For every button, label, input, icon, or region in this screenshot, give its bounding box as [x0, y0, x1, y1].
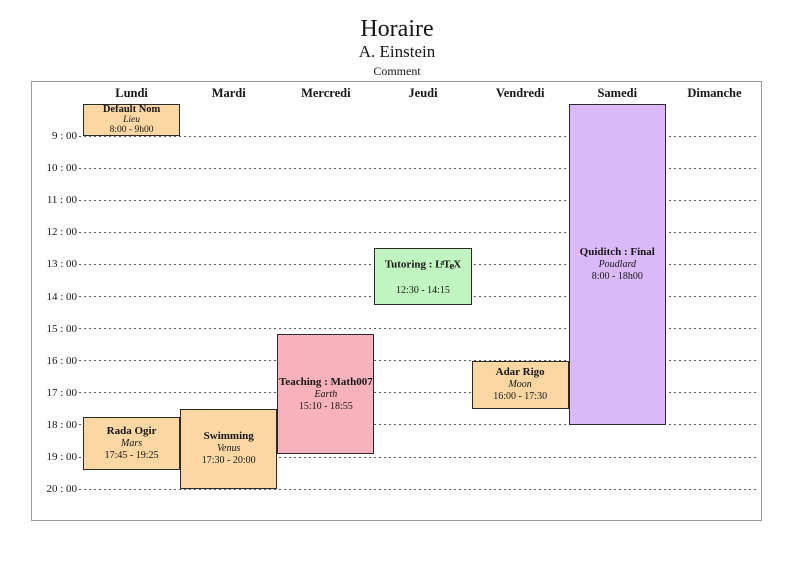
event-title: Tutoring : LaTeX	[385, 256, 461, 274]
event-swimming: SwimmingVenus17:30 - 20:00	[180, 409, 277, 489]
event-location: Lieu	[123, 115, 140, 125]
day-header-samedi: Samedi	[597, 86, 637, 100]
event-time: 12:30 - 14:15	[396, 285, 450, 297]
hour-label-13: 13 : 00	[36, 258, 77, 270]
event-title: Teaching : Math007	[279, 376, 373, 389]
event-teaching-math007: Teaching : Math007Earth15:10 - 18:55	[277, 334, 374, 454]
page-title: Horaire	[0, 16, 794, 42]
event-time: 15:10 - 18:55	[299, 401, 353, 413]
day-header-lundi: Lundi	[115, 86, 148, 100]
title-block: Horaire A. Einstein Comment	[0, 16, 794, 78]
event-location: Moon	[508, 379, 531, 391]
event-rada-ogir: Rada OgirMars17:45 - 19:25	[83, 417, 180, 471]
hour-label-12: 12 : 00	[36, 226, 77, 238]
page-comment: Comment	[0, 65, 794, 78]
event-quiditch-final: Quiditch : FinalPoudlard8:00 - 18h00	[569, 104, 666, 425]
day-header-mercredi: Mercredi	[301, 86, 351, 100]
event-time: 17:30 - 20:00	[202, 455, 256, 467]
event-title: Quiditch : Final	[580, 246, 655, 259]
day-header-jeudi: Jeudi	[408, 86, 437, 100]
hour-label-18: 18 : 00	[36, 419, 77, 431]
event-title: Adar Rigo	[496, 366, 545, 379]
event-location: Earth	[314, 389, 337, 401]
event-time: 8:00 - 9h00	[110, 125, 154, 135]
day-header-vendredi: Vendredi	[496, 86, 545, 100]
page-author: A. Einstein	[0, 43, 794, 62]
hour-label-14: 14 : 00	[36, 291, 77, 303]
event-time: 16:00 - 17:30	[493, 391, 547, 403]
hour-label-16: 16 : 00	[36, 355, 77, 367]
event-adar-rigo: Adar RigoMoon16:00 - 17:30	[472, 361, 569, 409]
event-location: Poudlard	[599, 259, 636, 271]
hour-label-20: 20 : 00	[36, 483, 77, 495]
event-title: Swimming	[204, 430, 254, 443]
hour-label-17: 17 : 00	[36, 387, 77, 399]
schedule-grid: LundiMardiMercrediJeudiVendrediSamediDim…	[31, 81, 762, 521]
day-header-mardi: Mardi	[212, 86, 246, 100]
hour-label-11: 11 : 00	[36, 194, 77, 206]
event-title: Rada Ogir	[107, 425, 157, 438]
day-header-dimanche: Dimanche	[687, 86, 741, 100]
hour-label-10: 10 : 00	[36, 162, 77, 174]
hour-label-19: 19 : 00	[36, 451, 77, 463]
event-title: Default Nom	[103, 104, 160, 115]
latex-logo-letter: X	[453, 258, 461, 270]
event-default-nom: Default NomLieu8:00 - 9h00	[83, 104, 180, 136]
event-location: Venus	[217, 443, 240, 455]
hour-label-9: 9 : 00	[36, 130, 77, 142]
hour-label-15: 15 : 00	[36, 323, 77, 335]
event-tutoring-latex: Tutoring : LaTeX12:30 - 14:15	[374, 248, 471, 304]
event-location: Mars	[121, 438, 142, 450]
event-time: 8:00 - 18h00	[592, 271, 643, 283]
event-time: 17:45 - 19:25	[105, 450, 159, 462]
